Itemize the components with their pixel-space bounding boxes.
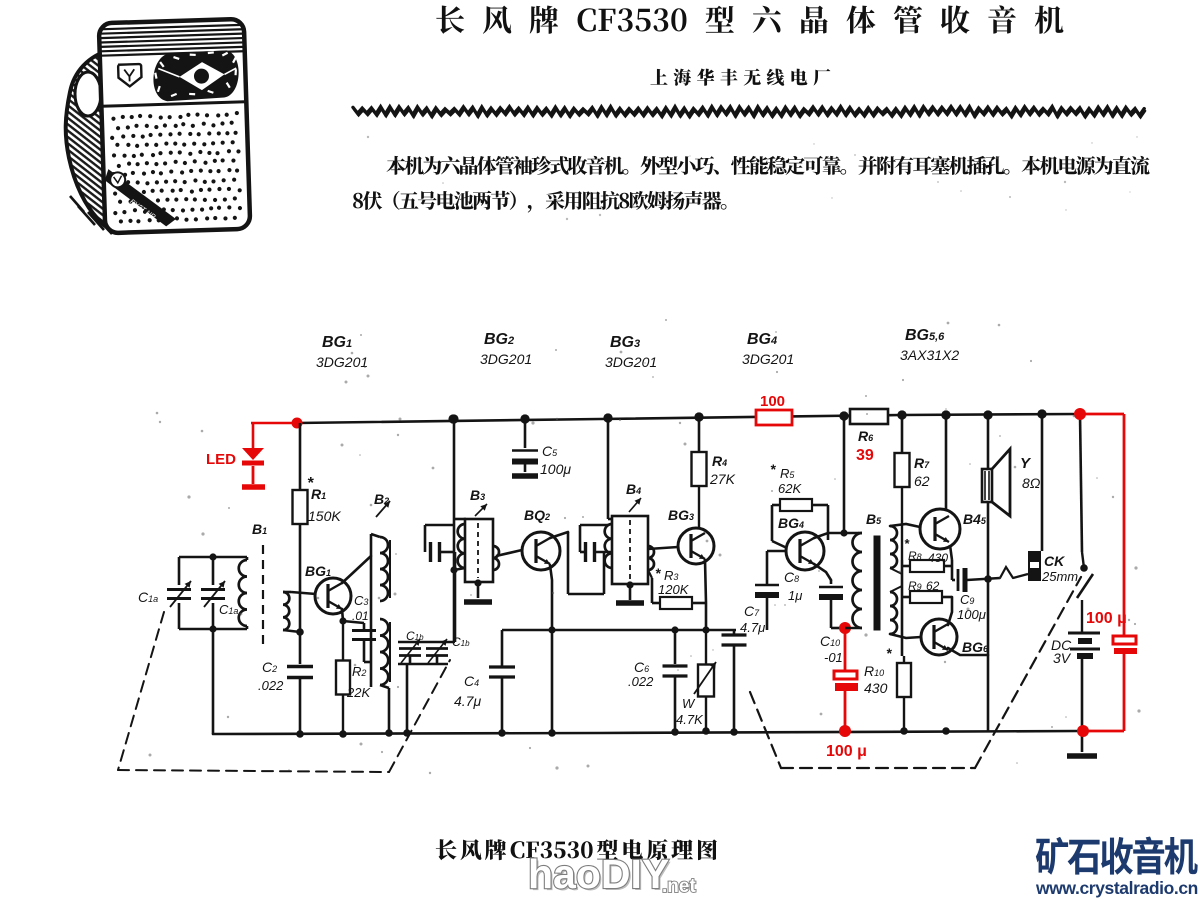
svg-text:*: * bbox=[886, 645, 892, 661]
svg-text:*: * bbox=[770, 461, 776, 477]
svg-text:100μ: 100μ bbox=[957, 607, 986, 622]
svg-text:1μ: 1μ bbox=[788, 588, 802, 603]
svg-text:430: 430 bbox=[864, 680, 888, 696]
svg-text:8Ω: 8Ω bbox=[1022, 475, 1041, 491]
svg-text:100μ: 100μ bbox=[540, 461, 571, 477]
svg-text:*: * bbox=[655, 565, 661, 581]
svg-text:120K: 120K bbox=[658, 582, 690, 597]
svg-text:R9: R9 bbox=[908, 579, 922, 593]
svg-text:100: 100 bbox=[760, 393, 785, 410]
svg-text:LED: LED bbox=[206, 451, 236, 468]
svg-text:62K: 62K bbox=[778, 481, 802, 496]
svg-text:.022: .022 bbox=[628, 674, 654, 689]
svg-text:430: 430 bbox=[928, 551, 948, 565]
svg-text:.022: .022 bbox=[258, 678, 284, 693]
svg-text:62: 62 bbox=[926, 579, 940, 593]
svg-text:4.7μ: 4.7μ bbox=[740, 620, 765, 635]
svg-text:3DG201: 3DG201 bbox=[605, 354, 657, 370]
svg-text:100 μ: 100 μ bbox=[1086, 610, 1127, 627]
svg-text:-01: -01 bbox=[824, 650, 843, 665]
svg-text:3V: 3V bbox=[1053, 650, 1072, 666]
svg-text:4.7K: 4.7K bbox=[676, 712, 704, 727]
svg-text:22K: 22K bbox=[346, 685, 371, 700]
svg-text:.net: .net bbox=[662, 876, 696, 897]
svg-text:haoDIY: haoDIY bbox=[528, 851, 669, 897]
svg-text:3DG201: 3DG201 bbox=[316, 354, 368, 370]
svg-text:www.crystalradio.cn: www.crystalradio.cn bbox=[1035, 878, 1198, 898]
svg-text:.01: .01 bbox=[352, 609, 369, 623]
svg-text:62: 62 bbox=[914, 473, 930, 489]
svg-text:4.7μ: 4.7μ bbox=[454, 693, 481, 709]
svg-text:3DG201: 3DG201 bbox=[742, 351, 794, 367]
svg-text:27K: 27K bbox=[709, 471, 736, 487]
svg-text:W: W bbox=[682, 696, 696, 711]
svg-text:100 μ: 100 μ bbox=[826, 743, 867, 760]
svg-text:39: 39 bbox=[856, 447, 874, 464]
svg-text:CK: CK bbox=[1044, 553, 1065, 569]
svg-text:3AX31X2: 3AX31X2 bbox=[900, 347, 959, 363]
svg-text:25mm: 25mm bbox=[1041, 569, 1078, 584]
svg-text:3DG201: 3DG201 bbox=[480, 351, 532, 367]
svg-text:150K: 150K bbox=[308, 508, 341, 524]
svg-text:R8: R8 bbox=[908, 549, 922, 563]
